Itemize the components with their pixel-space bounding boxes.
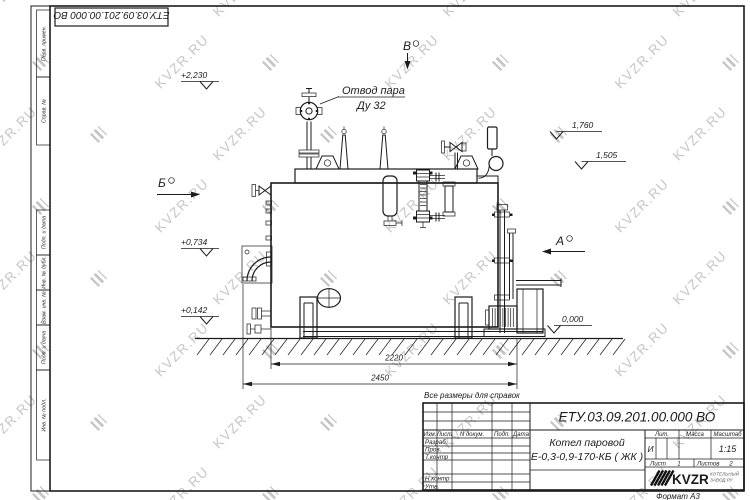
reference-note: Все размеры для справок [424, 391, 521, 400]
kvzr-logo-subtext2: ЗАВОД.РУ [710, 478, 734, 483]
row-nkontr: Н.контр [425, 475, 450, 482]
view-label-b: Б [158, 176, 166, 190]
left-side-fittings [242, 185, 272, 335]
title-block: ЕТУ.03.09.201.00.000 ВО Котел паровой Е-… [423, 403, 744, 500]
kvzr-logo-icon [651, 471, 674, 486]
stamp-field-label: Перв. примен. [41, 26, 47, 61]
support-feet [300, 297, 543, 338]
elevation-label: +0,734 [181, 237, 208, 247]
view-arrow-v: В [403, 39, 419, 70]
top-doc-number-box: ЕТУ.03.09.201.00.000 ВО [53, 8, 169, 26]
kvzr-logo-text: KVZR [672, 472, 709, 487]
row-utv: Утв. [424, 483, 439, 490]
stamp-field-label: Подп. и дата [41, 216, 47, 249]
stamp-field-label: Инв. № подл. [41, 399, 47, 432]
kvzr-logo-subtext1: КОТЕЛЬНЫЙ [710, 470, 740, 477]
safety-valves [340, 127, 388, 170]
steam-outlet-callout: Отвод пара Ду 32 [320, 85, 405, 112]
row-razrab: Разраб. [425, 439, 447, 446]
stamp-column: Перв. примен. Справ. № Подп. и дата Инв.… [37, 10, 51, 460]
col-izm: Изм. [424, 432, 437, 438]
blueprint-canvas: Перв. примен. Справ. № Подп. и дата Инв.… [0, 0, 750, 500]
elbow-box [242, 246, 272, 283]
view-arrow-b: Б [157, 176, 200, 198]
elevation-label: 1,505 [596, 150, 618, 160]
steam-outlet-pipe [296, 89, 322, 170]
lit-value: И [647, 444, 654, 454]
steam-valve-flange [300, 102, 317, 119]
elevation-mark-1760: 1,760 [550, 120, 602, 139]
siphon-loop [489, 157, 503, 171]
elevation-mark-0734: +0,734 [181, 237, 219, 256]
elevation-label: 1,760 [572, 120, 594, 130]
stamp-field-label: Взам. инв. № [41, 291, 47, 324]
pressure-gauge [479, 127, 504, 178]
view-arrow-a: А [542, 234, 585, 255]
col-podp: Подп. [494, 432, 510, 438]
fan-housing [517, 289, 543, 333]
col-ndocum: N докум. [460, 432, 484, 438]
view-label-v: В [403, 39, 411, 53]
top-doc-number: ЕТУ.03.09.201.00.000 ВО [53, 9, 169, 20]
sheet-label: Лист [649, 460, 666, 467]
elevation-label: +0,142 [181, 305, 208, 315]
ground [195, 339, 625, 356]
callout-line1: Отвод пара [342, 85, 405, 97]
boiler-body [271, 156, 498, 327]
scale-label: Масштаб [713, 432, 742, 438]
sheets-value: 2 [728, 460, 733, 467]
ground-hatch [197, 339, 625, 355]
product-name-line1: Котел паровой [549, 437, 624, 449]
col-data: Дата [512, 432, 529, 438]
row-prov: Пров. [425, 447, 441, 454]
elevation-label: +2,230 [181, 70, 208, 80]
view-label-a: А [555, 234, 564, 248]
lit-label: Лит. [654, 432, 669, 438]
callout-line2: Ду 32 [355, 100, 386, 112]
dim-2450: 2450 [370, 374, 389, 383]
col-list: Лист [436, 432, 452, 438]
elevation-mark-2230: +2,230 [181, 70, 219, 89]
elevation-mark-0000: 0,000 [548, 314, 593, 333]
elevation-label: 0,000 [562, 314, 584, 324]
dim-2220: 2220 [384, 354, 403, 363]
scale-value: 1:15 [719, 444, 738, 454]
elevation-mark-0142: +0,142 [181, 305, 219, 324]
stamp-field-label: Подп. и дата [41, 331, 47, 364]
stamp-field-label: Инв. № дубл. [41, 256, 47, 289]
water-level-gauge [413, 170, 455, 228]
stamp-field-label: Справ. № [41, 99, 47, 123]
gauge-shutoff-valve [442, 141, 467, 169]
row-tkontr: Т.контр [425, 454, 449, 461]
manhole [318, 289, 341, 308]
massa-label: Масса [686, 432, 704, 438]
format-label: Формат А3 [656, 492, 700, 500]
title-doc-number: ЕТУ.03.09.201.00.000 ВО [559, 410, 716, 425]
product-name-line2: Е-0,3-0,9-170-КБ ( ЖК ) [531, 451, 643, 463]
elevation-mark-1505: 1,505 [575, 150, 626, 169]
motor-ribs [493, 308, 514, 327]
gauge-glass-ticks [420, 185, 426, 206]
drawing-sheet: KVZR.RUKVZR.RUKVZR.RUKVZR.RUKVZR.RUKVZR.… [0, 0, 750, 500]
right-downcomer-column [492, 205, 516, 334]
sheet-value: 1 [677, 460, 680, 467]
sheets-label: Листов [696, 460, 720, 467]
